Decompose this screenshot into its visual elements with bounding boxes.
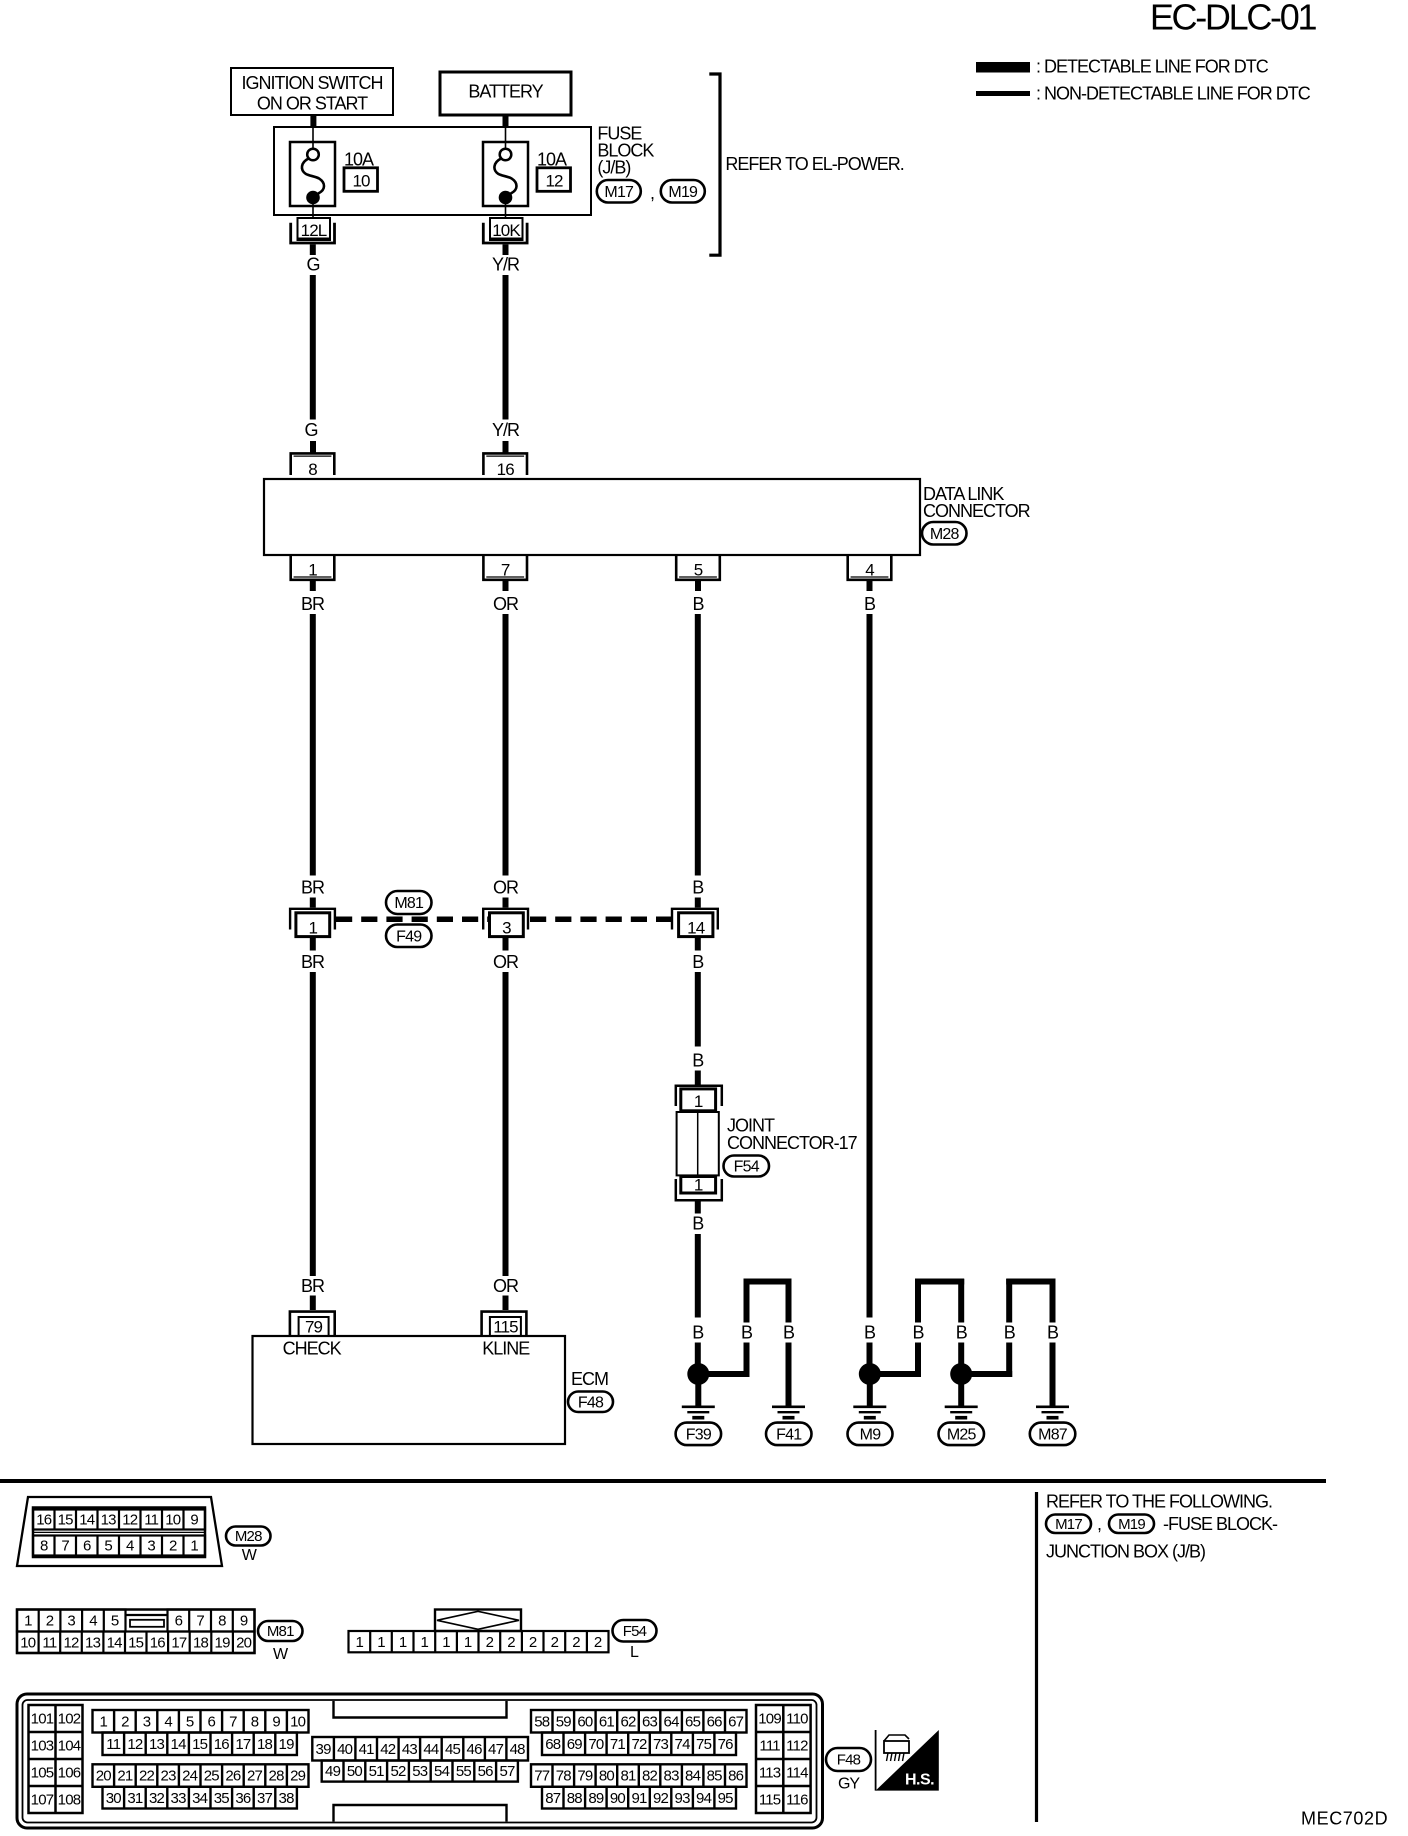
svg-text:102: 102 [58, 1711, 81, 1728]
svg-text:34: 34 [192, 1790, 208, 1807]
svg-text:114: 114 [786, 1765, 808, 1782]
svg-text:2: 2 [486, 1634, 494, 1651]
svg-text:W: W [273, 1646, 289, 1663]
svg-text:10: 10 [165, 1512, 181, 1529]
svg-text:12L: 12L [301, 221, 327, 240]
svg-text:3: 3 [67, 1613, 75, 1630]
svg-text:ON OR START: ON OR START [257, 94, 368, 114]
svg-text:73: 73 [653, 1736, 669, 1753]
svg-text:45: 45 [445, 1741, 461, 1758]
svg-text:10: 10 [352, 172, 370, 191]
svg-text:2: 2 [572, 1634, 580, 1651]
svg-text:24: 24 [182, 1768, 198, 1785]
svg-text:93: 93 [675, 1790, 691, 1807]
svg-text:B: B [692, 1051, 704, 1071]
svg-text:B: B [1004, 1323, 1016, 1343]
svg-text:48: 48 [510, 1741, 526, 1758]
svg-text:43: 43 [402, 1741, 418, 1758]
svg-text:77: 77 [534, 1768, 550, 1785]
svg-text:20: 20 [236, 1634, 252, 1651]
svg-text:ECM: ECM [571, 1369, 608, 1389]
svg-text:REFER TO THE FOLLOWING.: REFER TO THE FOLLOWING. [1046, 1492, 1272, 1512]
svg-text:59: 59 [556, 1713, 572, 1730]
svg-text:115: 115 [759, 1792, 781, 1809]
svg-text:18: 18 [193, 1634, 209, 1651]
svg-text:31: 31 [127, 1790, 143, 1807]
svg-text:MEC702D: MEC702D [1301, 1809, 1388, 1829]
svg-text:7: 7 [501, 561, 510, 580]
svg-text:39: 39 [316, 1741, 332, 1758]
svg-text:14: 14 [171, 1736, 187, 1753]
svg-text:2: 2 [121, 1713, 129, 1730]
svg-text:1: 1 [694, 1092, 703, 1111]
svg-text:90: 90 [610, 1790, 626, 1807]
svg-text:KLINE: KLINE [482, 1339, 530, 1359]
svg-text:1: 1 [464, 1634, 472, 1651]
svg-text:7: 7 [229, 1713, 237, 1730]
svg-text:28: 28 [269, 1768, 285, 1785]
svg-text:1: 1 [100, 1713, 108, 1730]
svg-text:B: B [692, 878, 704, 898]
svg-text:108: 108 [58, 1792, 81, 1809]
svg-text:B: B [912, 1323, 924, 1343]
svg-text:29: 29 [290, 1768, 306, 1785]
svg-text:62: 62 [620, 1713, 636, 1730]
svg-text:G: G [304, 420, 317, 440]
svg-text:1: 1 [24, 1613, 32, 1630]
svg-text:B: B [692, 952, 704, 972]
svg-text:116: 116 [786, 1792, 808, 1809]
svg-text:88: 88 [567, 1790, 583, 1807]
svg-text:21: 21 [117, 1768, 133, 1785]
svg-text:2: 2 [169, 1538, 177, 1555]
svg-text:1: 1 [694, 1176, 703, 1195]
svg-text:30: 30 [106, 1790, 122, 1807]
svg-text:111: 111 [759, 1738, 780, 1755]
svg-text:9: 9 [190, 1512, 198, 1529]
svg-text:54: 54 [434, 1763, 450, 1780]
svg-text:19: 19 [279, 1736, 295, 1753]
svg-text:37: 37 [257, 1790, 273, 1807]
svg-text:65: 65 [685, 1713, 701, 1730]
svg-text:49: 49 [325, 1763, 341, 1780]
svg-text:71: 71 [610, 1736, 626, 1753]
svg-text:105: 105 [31, 1765, 54, 1782]
svg-text:12: 12 [122, 1512, 138, 1529]
svg-text:F48: F48 [578, 1394, 604, 1411]
svg-text:80: 80 [599, 1768, 615, 1785]
svg-text:64: 64 [664, 1713, 680, 1730]
svg-text:89: 89 [588, 1790, 604, 1807]
svg-text:IGNITION SWITCH: IGNITION SWITCH [242, 73, 383, 93]
svg-text:10: 10 [290, 1713, 306, 1730]
svg-text:F39: F39 [686, 1426, 712, 1443]
svg-text:2: 2 [594, 1634, 602, 1651]
svg-text:109: 109 [758, 1711, 781, 1728]
svg-text:17: 17 [171, 1634, 187, 1651]
svg-text:14: 14 [79, 1512, 95, 1529]
svg-text:33: 33 [171, 1790, 187, 1807]
svg-text:27: 27 [247, 1768, 263, 1785]
svg-text:Y/R: Y/R [492, 420, 520, 440]
svg-text:JUNCTION BOX (J/B): JUNCTION BOX (J/B) [1046, 1542, 1205, 1562]
svg-text:112: 112 [786, 1738, 808, 1755]
svg-text:95: 95 [718, 1790, 734, 1807]
svg-text:70: 70 [588, 1736, 604, 1753]
svg-text:23: 23 [161, 1768, 177, 1785]
svg-text:14: 14 [107, 1634, 123, 1651]
svg-text:3: 3 [147, 1538, 155, 1555]
svg-text:8: 8 [251, 1713, 259, 1730]
svg-text:53: 53 [412, 1763, 428, 1780]
svg-text:OR: OR [493, 952, 519, 972]
svg-text:12: 12 [63, 1634, 79, 1651]
svg-text:F49: F49 [396, 928, 422, 945]
svg-text:CONNECTOR-17: CONNECTOR-17 [727, 1133, 858, 1153]
svg-text:1: 1 [309, 919, 318, 938]
svg-text:58: 58 [534, 1713, 550, 1730]
svg-text:8: 8 [308, 460, 317, 479]
svg-text:,: , [1097, 1514, 1101, 1534]
svg-text:8: 8 [40, 1538, 48, 1555]
svg-text:B: B [956, 1323, 968, 1343]
svg-text:5: 5 [111, 1613, 119, 1630]
svg-text:4: 4 [89, 1613, 97, 1630]
svg-text:15: 15 [58, 1512, 74, 1529]
svg-text:: NON-DETECTABLE LINE FOR DTC: : NON-DETECTABLE LINE FOR DTC [1036, 84, 1311, 104]
svg-text:8: 8 [218, 1613, 226, 1630]
svg-text:63: 63 [642, 1713, 658, 1730]
svg-text:M9: M9 [860, 1426, 882, 1443]
svg-text:2: 2 [507, 1634, 515, 1651]
svg-text:52: 52 [390, 1763, 406, 1780]
svg-text:B: B [864, 594, 876, 614]
svg-text:9: 9 [240, 1613, 248, 1630]
svg-text:1: 1 [190, 1538, 198, 1555]
svg-text:GY: GY [838, 1776, 860, 1793]
svg-text:76: 76 [718, 1736, 734, 1753]
svg-text:19: 19 [215, 1634, 231, 1651]
svg-text:M25: M25 [947, 1426, 977, 1443]
svg-text:OR: OR [493, 594, 519, 614]
svg-text:26: 26 [225, 1768, 241, 1785]
svg-text:OR: OR [493, 1276, 519, 1296]
svg-text:3: 3 [502, 919, 511, 938]
svg-text:68: 68 [545, 1736, 561, 1753]
svg-text:104: 104 [58, 1738, 81, 1755]
svg-text:91: 91 [631, 1790, 647, 1807]
svg-text:16: 16 [214, 1736, 230, 1753]
svg-text:M19: M19 [1118, 1516, 1145, 1533]
svg-text:CHECK: CHECK [283, 1339, 342, 1359]
svg-text:6: 6 [175, 1613, 183, 1630]
svg-text:17: 17 [235, 1736, 251, 1753]
svg-text:BATTERY: BATTERY [468, 82, 543, 102]
svg-text:14: 14 [687, 919, 705, 938]
svg-text:G: G [306, 255, 319, 275]
svg-text:1: 1 [421, 1634, 429, 1651]
svg-text:B: B [692, 594, 704, 614]
svg-text:51: 51 [369, 1763, 385, 1780]
svg-text:13: 13 [101, 1512, 117, 1529]
svg-text:16: 16 [150, 1634, 166, 1651]
svg-text:12: 12 [127, 1736, 143, 1753]
svg-text:84: 84 [685, 1768, 701, 1785]
svg-text:50: 50 [347, 1763, 363, 1780]
svg-text:11: 11 [42, 1634, 56, 1651]
svg-text:F54: F54 [623, 1623, 647, 1640]
svg-text:74: 74 [675, 1736, 691, 1753]
svg-text:35: 35 [214, 1790, 230, 1807]
svg-text:42: 42 [380, 1741, 396, 1758]
svg-text:B: B [864, 1323, 876, 1343]
svg-text:115: 115 [493, 1318, 518, 1337]
svg-text:41: 41 [359, 1741, 375, 1758]
svg-text:3: 3 [143, 1713, 151, 1730]
svg-text:25: 25 [204, 1768, 220, 1785]
svg-text:101: 101 [31, 1711, 54, 1728]
svg-text:16: 16 [497, 460, 515, 479]
svg-text:4: 4 [126, 1538, 134, 1555]
svg-text:44: 44 [423, 1741, 439, 1758]
svg-text:94: 94 [696, 1790, 712, 1807]
svg-text:M19: M19 [668, 184, 698, 201]
svg-text:85: 85 [707, 1768, 723, 1785]
svg-text:BR: BR [301, 1276, 325, 1296]
svg-text:36: 36 [235, 1790, 251, 1807]
svg-text:B: B [1047, 1323, 1059, 1343]
svg-text:CONNECTOR: CONNECTOR [923, 501, 1031, 521]
svg-text:15: 15 [192, 1736, 208, 1753]
svg-text:6: 6 [83, 1538, 91, 1555]
svg-text:13: 13 [149, 1736, 165, 1753]
svg-text:6: 6 [208, 1713, 216, 1730]
svg-text:20: 20 [96, 1768, 112, 1785]
svg-text:2: 2 [46, 1613, 54, 1630]
svg-text:107: 107 [31, 1792, 54, 1809]
svg-text:(J/B): (J/B) [597, 158, 630, 178]
svg-text:F48: F48 [837, 1752, 861, 1769]
svg-text:10K: 10K [492, 221, 521, 240]
svg-text:79: 79 [305, 1318, 323, 1337]
svg-text:22: 22 [139, 1768, 155, 1785]
svg-text:H.S.: H.S. [905, 1772, 934, 1789]
svg-text:32: 32 [149, 1790, 165, 1807]
svg-text:: DETECTABLE LINE FOR DTC: : DETECTABLE LINE FOR DTC [1036, 57, 1269, 77]
svg-text:67: 67 [728, 1713, 744, 1730]
svg-text:4: 4 [164, 1713, 172, 1730]
svg-text:B: B [692, 1214, 704, 1234]
svg-text:7: 7 [196, 1613, 204, 1630]
svg-text:86: 86 [728, 1768, 744, 1785]
svg-text:81: 81 [620, 1768, 636, 1785]
svg-text:BR: BR [301, 952, 325, 972]
svg-text:5: 5 [104, 1538, 112, 1555]
svg-text:87: 87 [545, 1790, 561, 1807]
svg-text:66: 66 [707, 1713, 723, 1730]
svg-text:M28: M28 [930, 526, 960, 543]
svg-text:M17: M17 [1055, 1516, 1082, 1533]
svg-text:56: 56 [478, 1763, 494, 1780]
svg-text:18: 18 [257, 1736, 273, 1753]
svg-text:,: , [650, 183, 654, 203]
svg-text:EC-DLC-01: EC-DLC-01 [1150, 0, 1317, 38]
svg-text:16: 16 [36, 1512, 52, 1529]
svg-text:F54: F54 [734, 1159, 760, 1176]
svg-text:69: 69 [567, 1736, 583, 1753]
svg-text:79: 79 [577, 1768, 593, 1785]
svg-text:2: 2 [551, 1634, 559, 1651]
svg-text:78: 78 [556, 1768, 572, 1785]
svg-text:92: 92 [653, 1790, 669, 1807]
svg-text:83: 83 [664, 1768, 680, 1785]
svg-text:1: 1 [356, 1634, 364, 1651]
svg-text:Y/R: Y/R [492, 255, 520, 275]
svg-text:M87: M87 [1038, 1426, 1068, 1443]
svg-text:-FUSE BLOCK-: -FUSE BLOCK- [1163, 1514, 1278, 1534]
svg-text:OR: OR [493, 878, 519, 898]
svg-text:M81: M81 [394, 895, 424, 912]
svg-text:5: 5 [694, 561, 703, 580]
svg-text:106: 106 [58, 1765, 81, 1782]
svg-text:B: B [741, 1323, 753, 1343]
svg-text:46: 46 [467, 1741, 483, 1758]
svg-text:1: 1 [308, 561, 317, 580]
svg-text:10: 10 [20, 1634, 36, 1651]
svg-text:F41: F41 [776, 1426, 802, 1443]
svg-text:M28: M28 [235, 1528, 262, 1545]
svg-text:M81: M81 [267, 1623, 294, 1640]
svg-text:7: 7 [61, 1538, 69, 1555]
svg-text:103: 103 [31, 1738, 54, 1755]
svg-text:110: 110 [786, 1711, 808, 1728]
svg-text:75: 75 [696, 1736, 712, 1753]
svg-text:1: 1 [377, 1634, 385, 1651]
svg-text:60: 60 [577, 1713, 593, 1730]
svg-text:5: 5 [186, 1713, 194, 1730]
svg-text:BR: BR [301, 594, 325, 614]
svg-text:13: 13 [85, 1634, 101, 1651]
svg-text:4: 4 [865, 561, 874, 580]
svg-text:55: 55 [456, 1763, 472, 1780]
svg-text:9: 9 [272, 1713, 280, 1730]
svg-text:W: W [242, 1547, 258, 1564]
svg-text:72: 72 [631, 1736, 647, 1753]
svg-text:1: 1 [399, 1634, 407, 1651]
svg-text:2: 2 [529, 1634, 537, 1651]
svg-text:113: 113 [759, 1765, 781, 1782]
svg-text:47: 47 [488, 1741, 504, 1758]
svg-text:61: 61 [599, 1713, 615, 1730]
svg-text:1: 1 [442, 1634, 450, 1651]
svg-text:11: 11 [144, 1512, 158, 1529]
svg-text:B: B [783, 1323, 795, 1343]
svg-text:L: L [630, 1644, 639, 1661]
svg-text:11: 11 [106, 1736, 120, 1753]
svg-text:BR: BR [301, 878, 325, 898]
svg-text:38: 38 [279, 1790, 295, 1807]
svg-text:B: B [692, 1323, 704, 1343]
svg-text:12: 12 [545, 172, 563, 191]
svg-text:M17: M17 [604, 184, 634, 201]
svg-text:15: 15 [128, 1634, 144, 1651]
svg-text:57: 57 [499, 1763, 515, 1780]
svg-text:82: 82 [642, 1768, 658, 1785]
svg-text:40: 40 [337, 1741, 353, 1758]
svg-text:REFER TO EL-POWER.: REFER TO EL-POWER. [725, 154, 903, 174]
